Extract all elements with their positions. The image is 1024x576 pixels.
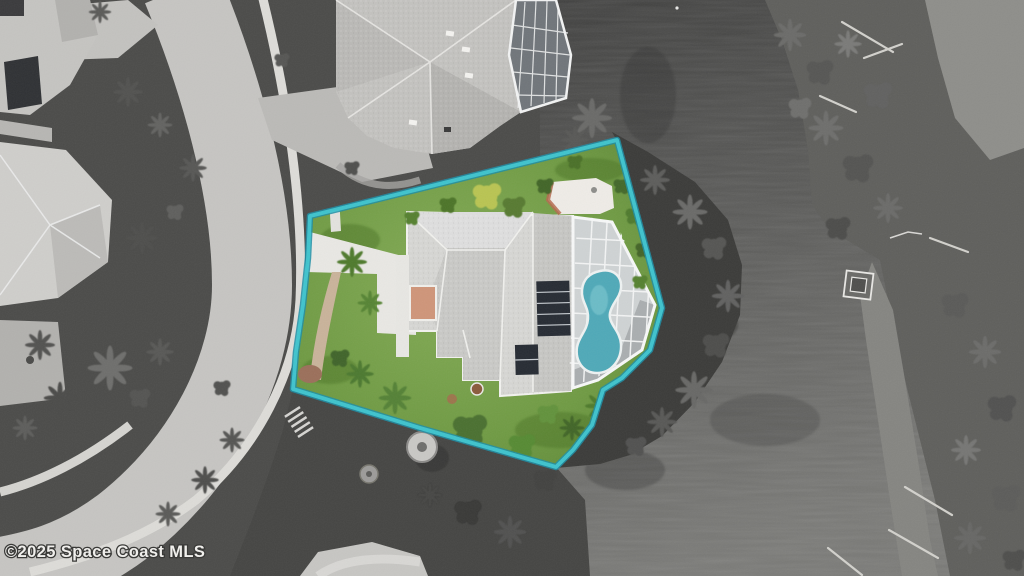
watermark-text: ©2025 Space Coast MLS: [5, 543, 205, 561]
photo-grain: [0, 0, 1024, 576]
aerial-photo: ©2025 Space Coast MLS: [0, 0, 1024, 576]
